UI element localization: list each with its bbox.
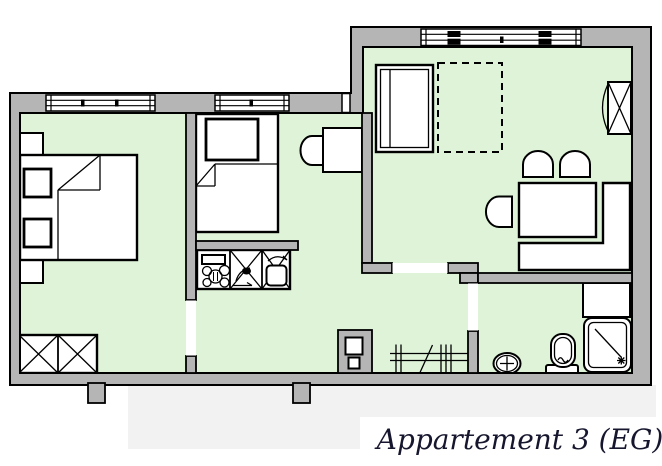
window-left-bedroom: [46, 95, 155, 111]
chair: [486, 197, 512, 228]
kitchenette: [197, 250, 290, 289]
chair: [523, 151, 553, 177]
facade-pillar: [293, 383, 310, 403]
dining-table: [519, 183, 596, 237]
bed: [376, 65, 433, 152]
bath-shelf: [583, 283, 630, 317]
pillar-box: [349, 358, 360, 369]
door-threshold: [186, 301, 196, 356]
plan-title: Appartement 3 (EG): [374, 423, 662, 456]
floor-plan-page: Appartement 3 (EG): [0, 0, 662, 466]
chair: [301, 136, 324, 165]
wall-notch: [342, 94, 350, 113]
control-panel: [202, 255, 225, 264]
wardrobe-two-door: [19, 335, 97, 373]
pillow: [24, 169, 51, 197]
facade-pillar: [88, 383, 105, 403]
window-middle-room: [215, 95, 289, 111]
door-threshold: [468, 284, 478, 331]
kitchen-sink-basin: [267, 266, 287, 286]
floor-plan: Appartement 3 (EG): [0, 0, 662, 466]
door-threshold: [393, 263, 448, 273]
pillar-box: [346, 338, 363, 355]
desk-table: [323, 128, 362, 172]
shower: [584, 318, 631, 372]
pillow: [24, 219, 51, 247]
nightstand: [20, 260, 43, 283]
nightstand: [20, 133, 43, 155]
drain-star: [617, 357, 626, 365]
pillow: [206, 119, 258, 160]
washbasin: [494, 353, 521, 374]
window-living-room: [421, 29, 581, 46]
chair: [560, 151, 590, 177]
